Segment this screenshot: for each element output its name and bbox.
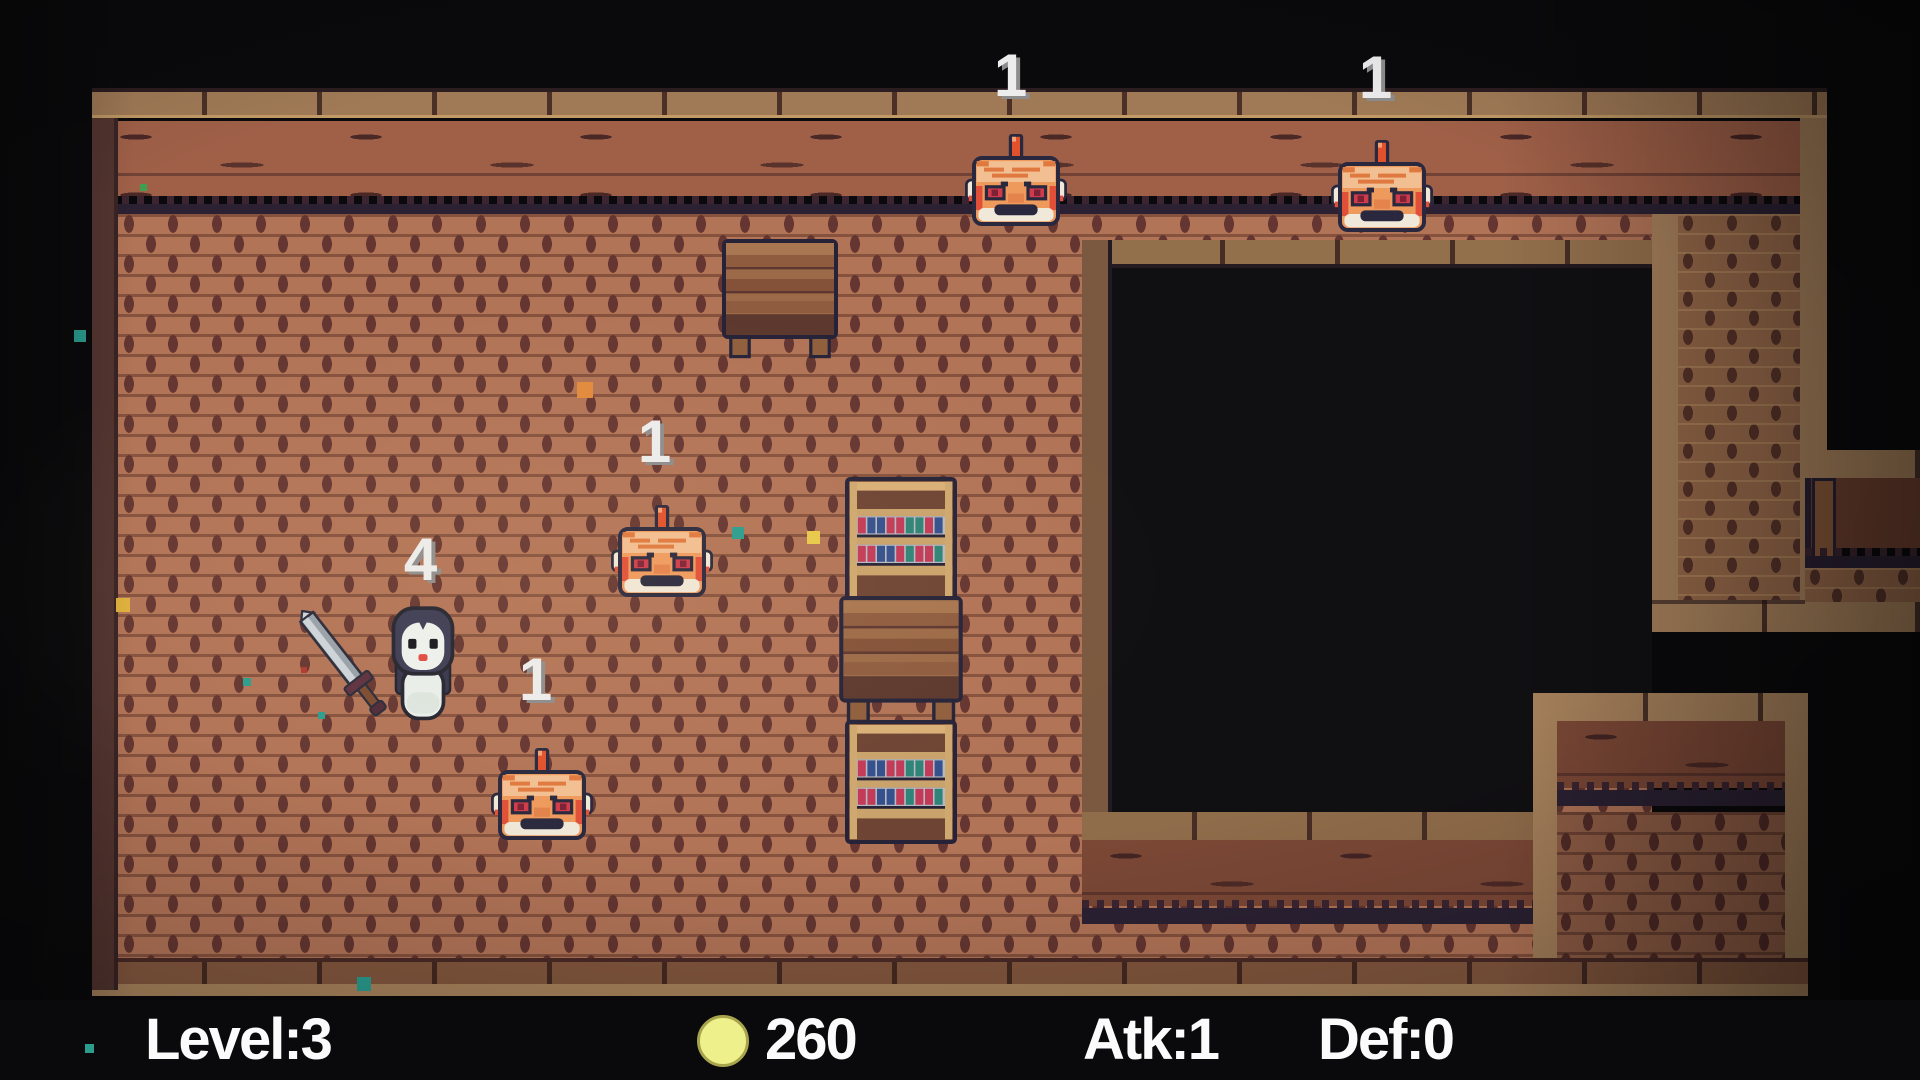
enemy-hp-label: 1 [994,46,1026,106]
level-stat: Level:3 [145,1012,331,1068]
particle [243,678,251,686]
ledge-bricks-below [1533,812,1808,958]
furniture-crate-table [839,596,963,724]
particle [140,184,147,191]
enemy-hp-label: 1 [638,412,670,472]
walkway-wood [1082,840,1556,906]
particle [807,531,820,544]
pit-top-edge [1110,240,1652,268]
particle [74,330,86,342]
player-character[interactable] [302,548,467,723]
bookshelf-icon [845,476,957,602]
ledge-wood [1557,721,1785,788]
game-map: 4 1 1 1 1 [0,0,1920,1080]
top-wall-shadow [92,204,1800,214]
atk-stat: Atk:1 [1083,1012,1218,1068]
ledge-right-edge [1785,693,1808,958]
walkway-teeth [1082,900,1556,908]
alcove-bottom-band [1805,602,1920,632]
bookshelf-icon [845,718,957,846]
particle [577,382,593,398]
walkway-shadow [1082,908,1556,924]
alcove-teeth [1805,548,1920,556]
spike-crab-icon [490,748,594,840]
game-screen[interactable]: 4 1 1 1 1 Level:3 260 Atk:1 Def:0 [0,0,1920,1080]
player-hp-label: 4 [404,530,436,590]
pit-lower [1112,695,1533,813]
top-wall-brick-row [92,88,1827,118]
bottom-wall [92,958,1808,986]
hud-bar: Level:3 260 Atk:1 Def:0 [0,996,1920,1080]
particle [732,527,744,539]
furniture-bookshelf-bottom [845,718,957,846]
furniture-table [722,238,838,360]
particle [301,667,307,673]
particle [116,598,130,612]
spike-crab-icon [964,134,1068,226]
spike-crab-icon [610,505,714,597]
def-stat: Def:0 [1318,1012,1453,1068]
right-wall-cap [1652,600,1827,632]
bottom-wall-edge [92,984,1808,996]
furniture-bookshelf-top [845,476,957,602]
top-wall-teeth [92,196,1800,204]
pit-bottom-edge [1082,812,1533,840]
enemy-top-right[interactable] [1330,140,1434,232]
ledge-shadow [1557,790,1785,806]
enemy-hp-label: 1 [1359,48,1391,108]
alcove-shadow [1805,556,1920,568]
ledge-top-band [1533,693,1808,721]
ledge-teeth [1557,782,1785,790]
gold-stat: 260 [765,1012,856,1068]
top-wall-planks [92,121,1800,196]
enemy-top-left[interactable] [964,134,1068,226]
pit-upper [1112,268,1652,698]
alcove-top-band [1805,450,1920,478]
particle [357,977,371,991]
right-wall-bricks [1678,214,1800,614]
enemy-middle[interactable] [610,505,714,597]
table-icon [722,238,838,360]
table-icon [839,596,963,724]
right-wall-left-edge [1652,214,1678,632]
enemy-hp-label: 1 [519,650,551,710]
spike-crab-icon [1330,140,1434,232]
ledge-left-edge [1533,693,1557,958]
particle [318,712,325,719]
left-wall [92,118,118,990]
pit-left-wall [1082,240,1112,840]
penguin-icon [382,606,464,721]
alcove-bricks [1805,568,1920,602]
enemy-lower-left[interactable] [490,748,594,840]
coin-icon [697,1015,749,1067]
